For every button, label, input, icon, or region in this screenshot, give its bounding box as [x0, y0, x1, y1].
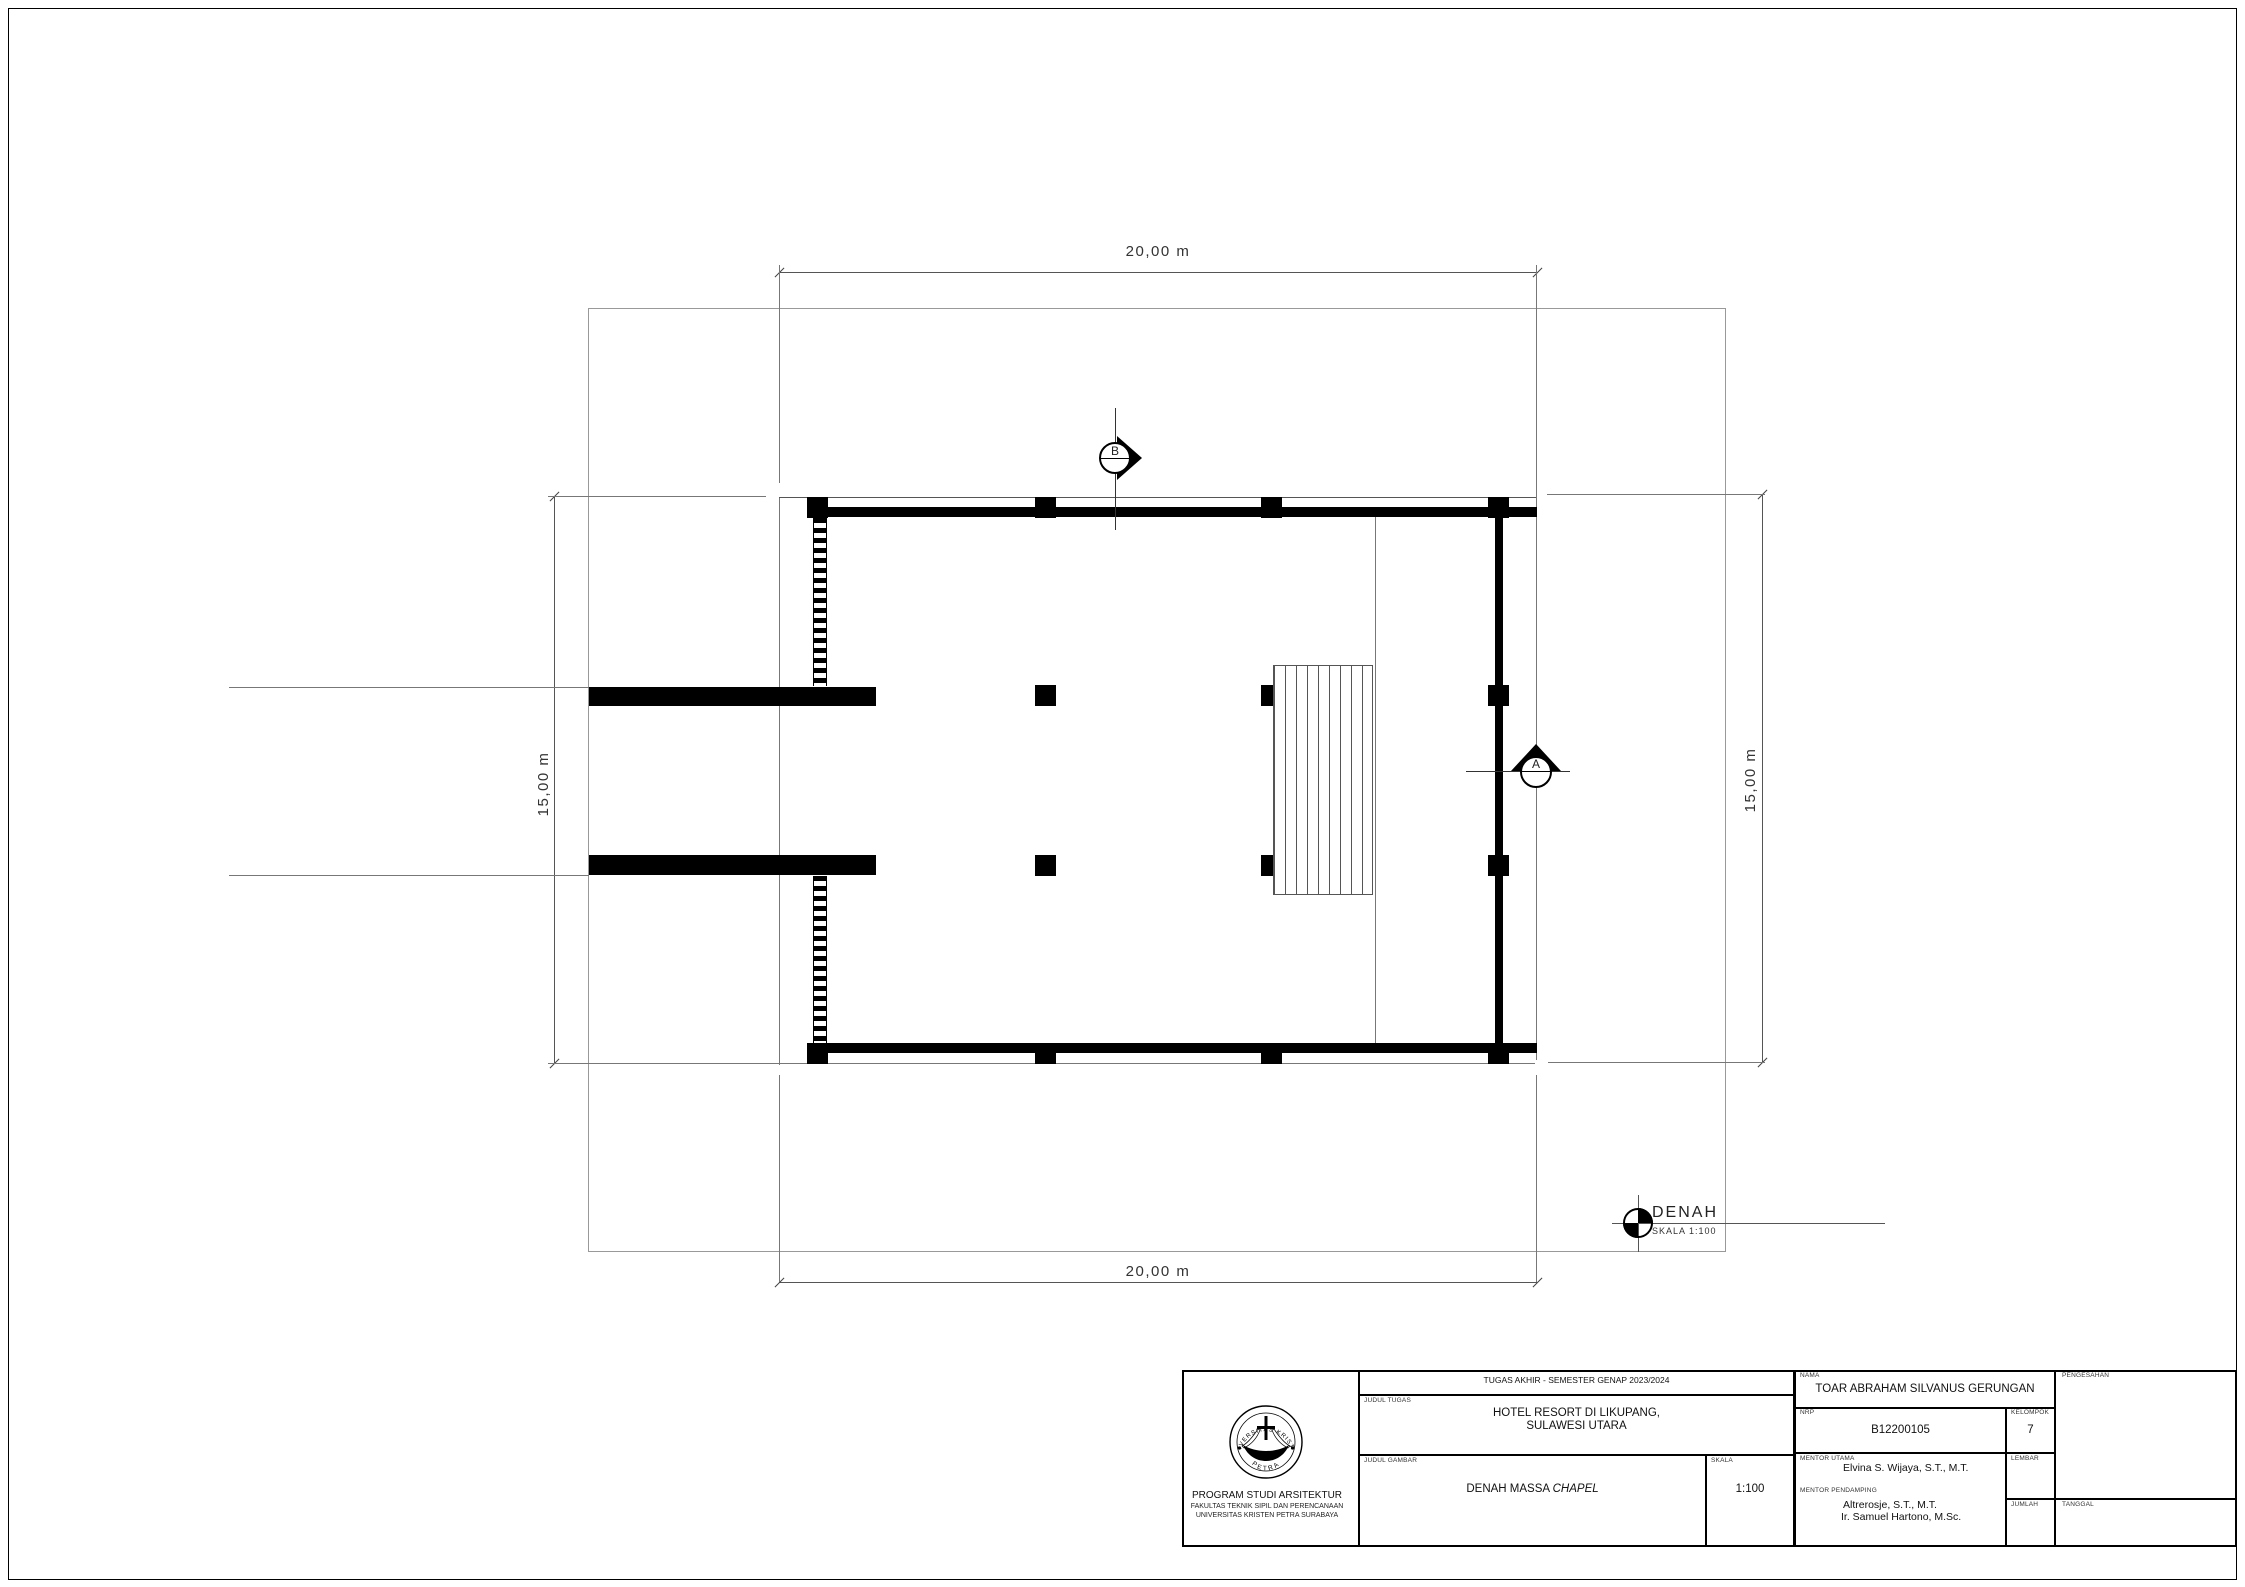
column	[1488, 685, 1509, 706]
title-block-divider	[1358, 1370, 1360, 1547]
walkway-edge-line	[229, 687, 589, 688]
mentor-pendamping-1: Altrerosje, S.T., M.T.	[1843, 1499, 1937, 1511]
project-header: TUGAS AKHIR - SEMESTER GENAP 2023/2024	[1360, 1375, 1793, 1385]
column	[807, 497, 828, 518]
section-b-diameter	[1101, 458, 1129, 459]
entrance-wall	[589, 855, 876, 875]
nama-label: NAMA	[1800, 1372, 1820, 1379]
column	[1261, 497, 1282, 518]
drawing-sheet: 20,00 m 20,00 m 15,00 m 15,00 m	[0, 0, 2245, 1587]
wall-bottom	[807, 1043, 1537, 1053]
svg-text:PETRA: PETRA	[1250, 1460, 1281, 1472]
title-block-divider	[2005, 1498, 2237, 1500]
column	[1035, 685, 1056, 706]
column	[1035, 855, 1056, 876]
mentor-pendamping-label: MENTOR PENDAMPING	[1800, 1487, 1877, 1494]
pengesahan-label: PENGESAHAN	[2062, 1372, 2109, 1379]
judul-tugas-line2: SULAWESI UTARA	[1360, 1420, 1793, 1432]
logo-faculty-text: FAKULTAS TEKNIK SIPIL DAN PERENCANAAN	[1187, 1503, 1347, 1510]
dimension-label-bottom: 20,00 m	[1108, 1263, 1208, 1280]
interior-partition-line	[1375, 517, 1376, 1043]
title-block-divider	[1793, 1452, 2056, 1454]
column	[807, 1043, 828, 1064]
logo-drape	[1243, 1445, 1289, 1461]
column	[1488, 855, 1509, 876]
column	[1035, 497, 1056, 518]
column	[1488, 497, 1509, 518]
judul-gambar-label: JUDUL GAMBAR	[1364, 1457, 1417, 1464]
drawing-scale: SKALA 1:100	[1652, 1226, 1717, 1236]
section-a-cut-line	[1466, 771, 1570, 772]
judul-gambar-main: DENAH MASSA	[1466, 1483, 1549, 1495]
altar-platform-steps	[1273, 665, 1373, 895]
judul-tugas-line1: HOTEL RESORT DI LIKUPANG,	[1360, 1407, 1793, 1419]
dimension-line-bottom	[779, 1282, 1537, 1283]
dimension-label-left: 15,00 m	[535, 734, 551, 834]
mentor-utama-value: Elvina S. Wijaya, S.T., M.T.	[1843, 1462, 1968, 1474]
site-boundary	[588, 308, 1726, 1252]
entrance-wall	[589, 687, 876, 706]
column	[1035, 1043, 1056, 1064]
wall-top	[807, 507, 1537, 517]
section-a-diameter	[1522, 771, 1550, 772]
skala-value: 1:100	[1707, 1483, 1793, 1495]
extension-line	[548, 496, 766, 497]
column	[1261, 1043, 1282, 1064]
extension-line	[1548, 1062, 1765, 1063]
title-block-divider	[1358, 1454, 1795, 1456]
kelompok-value: 7	[2007, 1424, 2054, 1436]
dimension-line-top	[779, 272, 1537, 273]
extension-line	[779, 497, 780, 1065]
louver-wall	[813, 518, 827, 686]
tanggal-label: TANGGAL	[2062, 1501, 2094, 1508]
dimension-label-top: 20,00 m	[1108, 243, 1208, 260]
skala-label: SKALA	[1711, 1457, 1733, 1464]
section-a-letter: A	[1524, 757, 1548, 771]
logo-program-text: PROGRAM STUDI ARSITEKTUR	[1192, 1490, 1342, 1501]
wall-right	[1495, 507, 1503, 1053]
judul-tugas-label: JUDUL TUGAS	[1364, 1397, 1411, 1404]
louver-wall	[813, 876, 827, 1043]
dimension-line-right	[1762, 494, 1763, 1062]
nrp-value: B12200105	[1796, 1424, 2005, 1436]
judul-gambar-value: DENAH MASSA CHAPEL	[1360, 1483, 1705, 1495]
dimension-line-left	[554, 496, 555, 1063]
extension-line	[1536, 265, 1537, 1060]
north-symbol-icon	[1623, 1208, 1653, 1238]
drawing-title: DENAH	[1652, 1204, 1718, 1222]
extension-line	[1536, 1075, 1537, 1282]
mentor-utama-label: MENTOR UTAMA	[1800, 1455, 1855, 1462]
logo-arc-text-bottom: PETRA	[1250, 1460, 1281, 1472]
title-block-divider	[1358, 1394, 1795, 1396]
extension-line	[1547, 494, 1765, 495]
title-block-divider	[1793, 1370, 1796, 1547]
column	[1488, 1043, 1509, 1064]
extension-line	[779, 265, 780, 483]
jumlah-label: JUMLAH	[2011, 1501, 2038, 1508]
lembar-label: LEMBAR	[2011, 1455, 2039, 1462]
university-logo: UNIVERSITAS KRISTEN PETRA	[1226, 1402, 1306, 1486]
wall-face-line	[779, 497, 1536, 498]
section-b-letter: B	[1103, 444, 1127, 458]
extension-line	[779, 1075, 780, 1282]
title-block-divider	[2054, 1370, 2056, 1547]
mentor-pendamping-2: Ir. Samuel Hartono, M.Sc.	[1841, 1511, 1961, 1523]
title-block-divider	[1705, 1454, 1707, 1547]
logo-university-text: UNIVERSITAS KRISTEN PETRA SURABAYA	[1187, 1512, 1347, 1519]
dimension-label-right: 15,00 m	[1742, 730, 1758, 830]
judul-gambar-italic: CHAPEL	[1553, 1483, 1599, 1495]
nrp-label: NRP	[1800, 1409, 1814, 1416]
kelompok-label: KELOMPOK	[2011, 1409, 2049, 1416]
walkway-edge-line	[229, 875, 589, 876]
nama-value: TOAR ABRAHAM SILVANUS GERUNGAN	[1796, 1383, 2054, 1395]
title-block	[1182, 1370, 2237, 1547]
